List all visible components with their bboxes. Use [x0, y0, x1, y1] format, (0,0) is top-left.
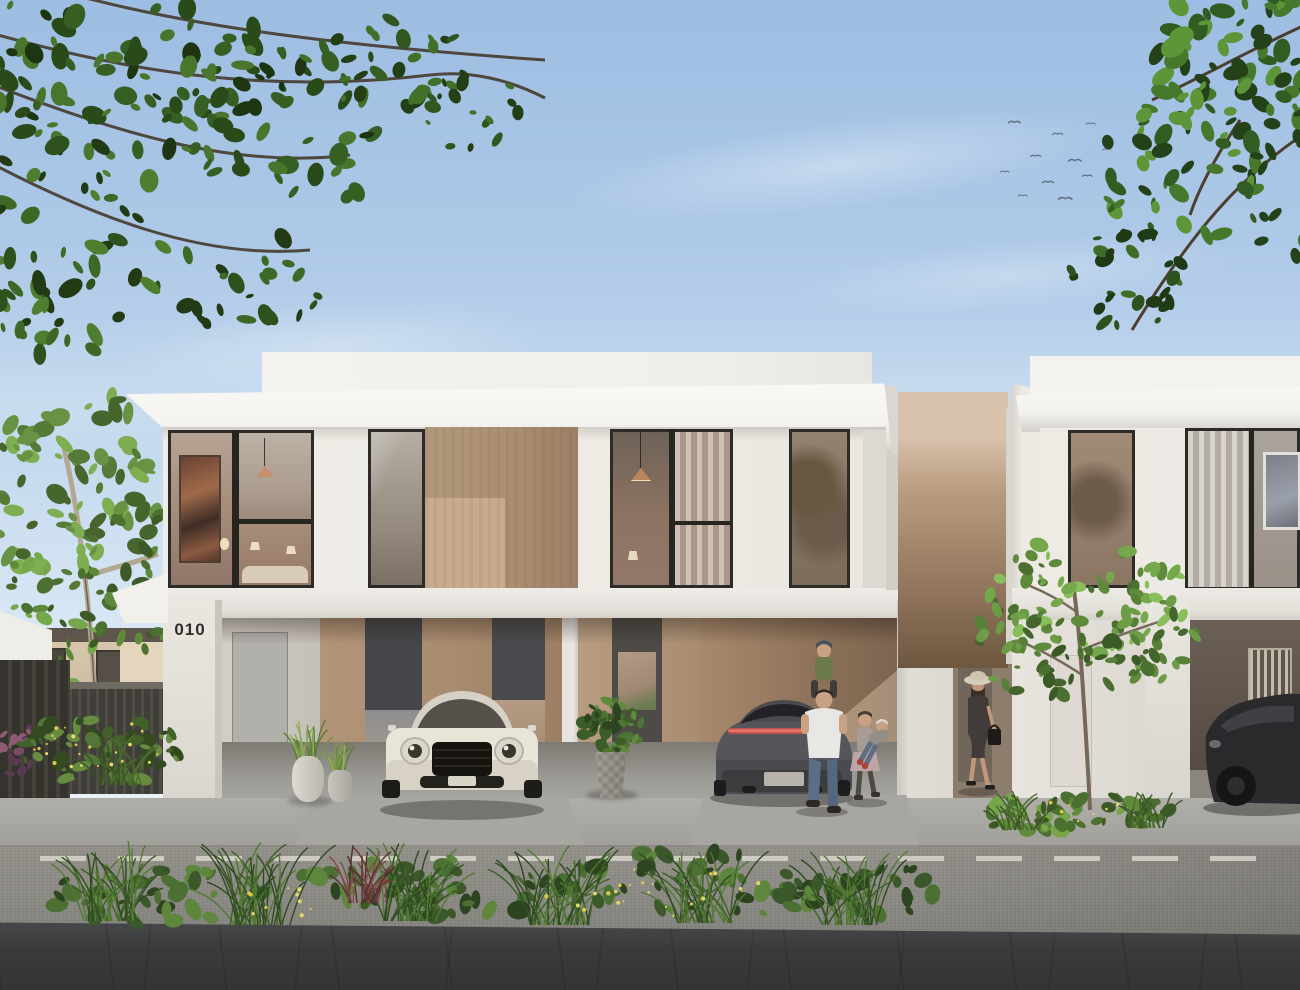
window-pane	[613, 432, 669, 585]
pendant-lamp	[640, 432, 641, 468]
small-tree	[970, 520, 1210, 820]
garden-bushes-left	[0, 693, 190, 803]
planter-pot-small	[328, 770, 352, 802]
white-luxury-coupe	[372, 676, 552, 826]
glass-reflection	[371, 432, 422, 585]
upper-window-bedroom-010	[168, 430, 314, 588]
upper-window-landing	[610, 429, 733, 588]
table-lamp-glow	[220, 538, 229, 550]
curtain-pane	[675, 432, 730, 585]
architectural-rendering: 010 011	[0, 0, 1300, 990]
table-lamp	[628, 551, 638, 560]
window-transom	[675, 521, 730, 525]
wall-art-painting	[179, 455, 221, 563]
window-pane	[792, 432, 847, 585]
upper-window-tall-right	[789, 429, 850, 588]
window-mullion	[232, 430, 239, 588]
upper-facade-corner	[863, 430, 886, 590]
tree-branches-top-left	[0, 0, 560, 390]
side-return-wall	[886, 455, 898, 590]
child-on-shoulders	[811, 641, 837, 699]
pillar-010-side	[215, 600, 222, 810]
black-car	[1198, 664, 1300, 816]
window-pane	[239, 433, 311, 519]
island-groundcover	[962, 778, 1197, 840]
table-lamp	[250, 542, 260, 550]
girl-with-toddler	[850, 711, 890, 800]
framed-picture	[1263, 452, 1300, 530]
tree-branches-top-right	[1040, 0, 1300, 350]
bed-pillows	[242, 566, 308, 583]
upper-window-tall	[368, 429, 425, 588]
table-lamp	[286, 546, 296, 554]
floor-slab-band	[126, 588, 900, 622]
wood-grain	[425, 427, 578, 590]
pendant-lamp	[264, 438, 265, 466]
man-white-tshirt	[801, 690, 847, 814]
house-number-010: 010	[167, 616, 213, 642]
foreground-bushes	[15, 823, 945, 943]
